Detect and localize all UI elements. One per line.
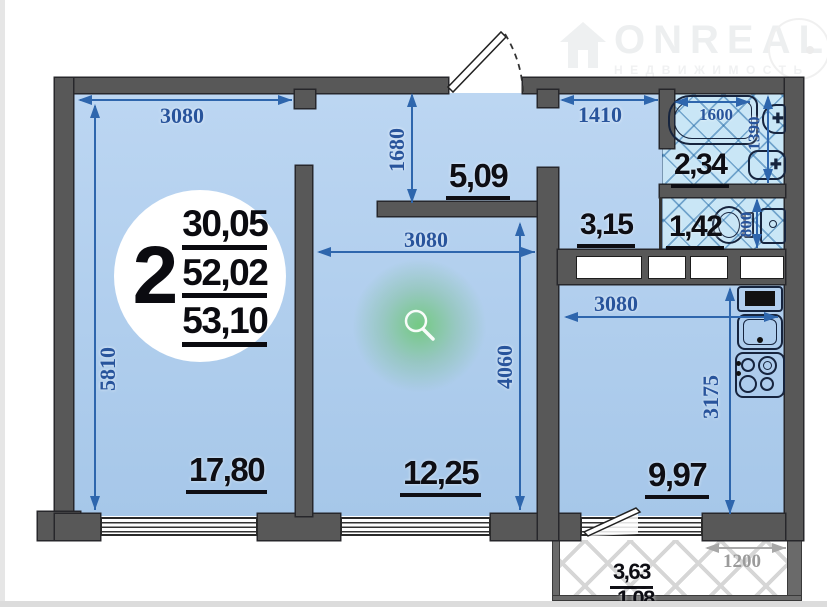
wall-stub-corridor	[538, 90, 558, 107]
image-edge-left	[0, 0, 5, 607]
bedroom-area: 12,25	[400, 456, 481, 497]
wall-right	[785, 78, 803, 540]
balcony-parapet-bottom	[553, 596, 801, 600]
watermark-circle-mark	[768, 18, 827, 80]
balcony-area-full: 3,63	[610, 561, 653, 589]
stove-knob	[736, 371, 741, 376]
wall-stub-livingroom	[295, 90, 315, 108]
stove-knob	[736, 361, 741, 366]
area-without-balcony: 52,02	[182, 254, 267, 299]
burner	[739, 375, 757, 393]
washing-machine-door	[769, 220, 777, 228]
magnifier-icon	[400, 306, 444, 350]
wall-bottom-seg2	[258, 514, 340, 540]
living-room-area: 17,80	[186, 453, 267, 494]
room-count: 2	[133, 235, 176, 317]
wall-bottom-seg4	[703, 514, 785, 540]
burner	[741, 358, 755, 372]
zoom-hotspot[interactable]	[352, 258, 487, 393]
apartment-info-badge: 2 30,05 52,02 53,10	[114, 190, 286, 362]
wc-door-line	[659, 197, 662, 250]
kitchen-area: 9,97	[645, 458, 709, 499]
living-area-total: 30,05	[182, 205, 267, 250]
fridge-inner	[745, 291, 775, 306]
wardrobe-section	[740, 256, 784, 279]
wardrobe-section	[648, 256, 686, 279]
entrance-door	[438, 16, 538, 96]
balcony-floor	[553, 540, 798, 602]
wall-top-left	[55, 78, 448, 93]
balcony-parapet-right	[788, 540, 801, 600]
wall-bottom-seg1	[55, 514, 100, 540]
wall-bottom-seg3	[491, 514, 580, 540]
sink-drain	[757, 337, 763, 343]
total-area: 53,10	[182, 302, 267, 347]
burner-inner	[763, 361, 772, 370]
wardrobe-section	[576, 256, 642, 279]
bathroom-area: 2,34	[671, 150, 729, 188]
balcony-door	[574, 498, 646, 540]
corridor-area: 3,15	[577, 210, 635, 248]
balcony-parapet-left	[553, 540, 559, 600]
wall-hall-bedroom	[378, 202, 550, 216]
floor-plan-screenshot: ONREAL НЕДВИЖИМОСТЬ	[0, 0, 827, 607]
image-edge-bottom	[0, 601, 827, 607]
wc-area: 1,42	[666, 212, 724, 250]
tap-icon: ✚	[772, 110, 784, 127]
wall-left	[55, 78, 73, 516]
window-living-room	[100, 517, 258, 536]
window-bedroom	[340, 517, 491, 536]
house-logo-icon	[560, 20, 606, 70]
burner	[760, 377, 774, 391]
wardrobe-section	[690, 256, 728, 279]
hall-area: 5,09	[446, 159, 510, 200]
wall-living-bedroom	[296, 166, 312, 516]
wall-bedroom-kitchen	[538, 168, 558, 540]
